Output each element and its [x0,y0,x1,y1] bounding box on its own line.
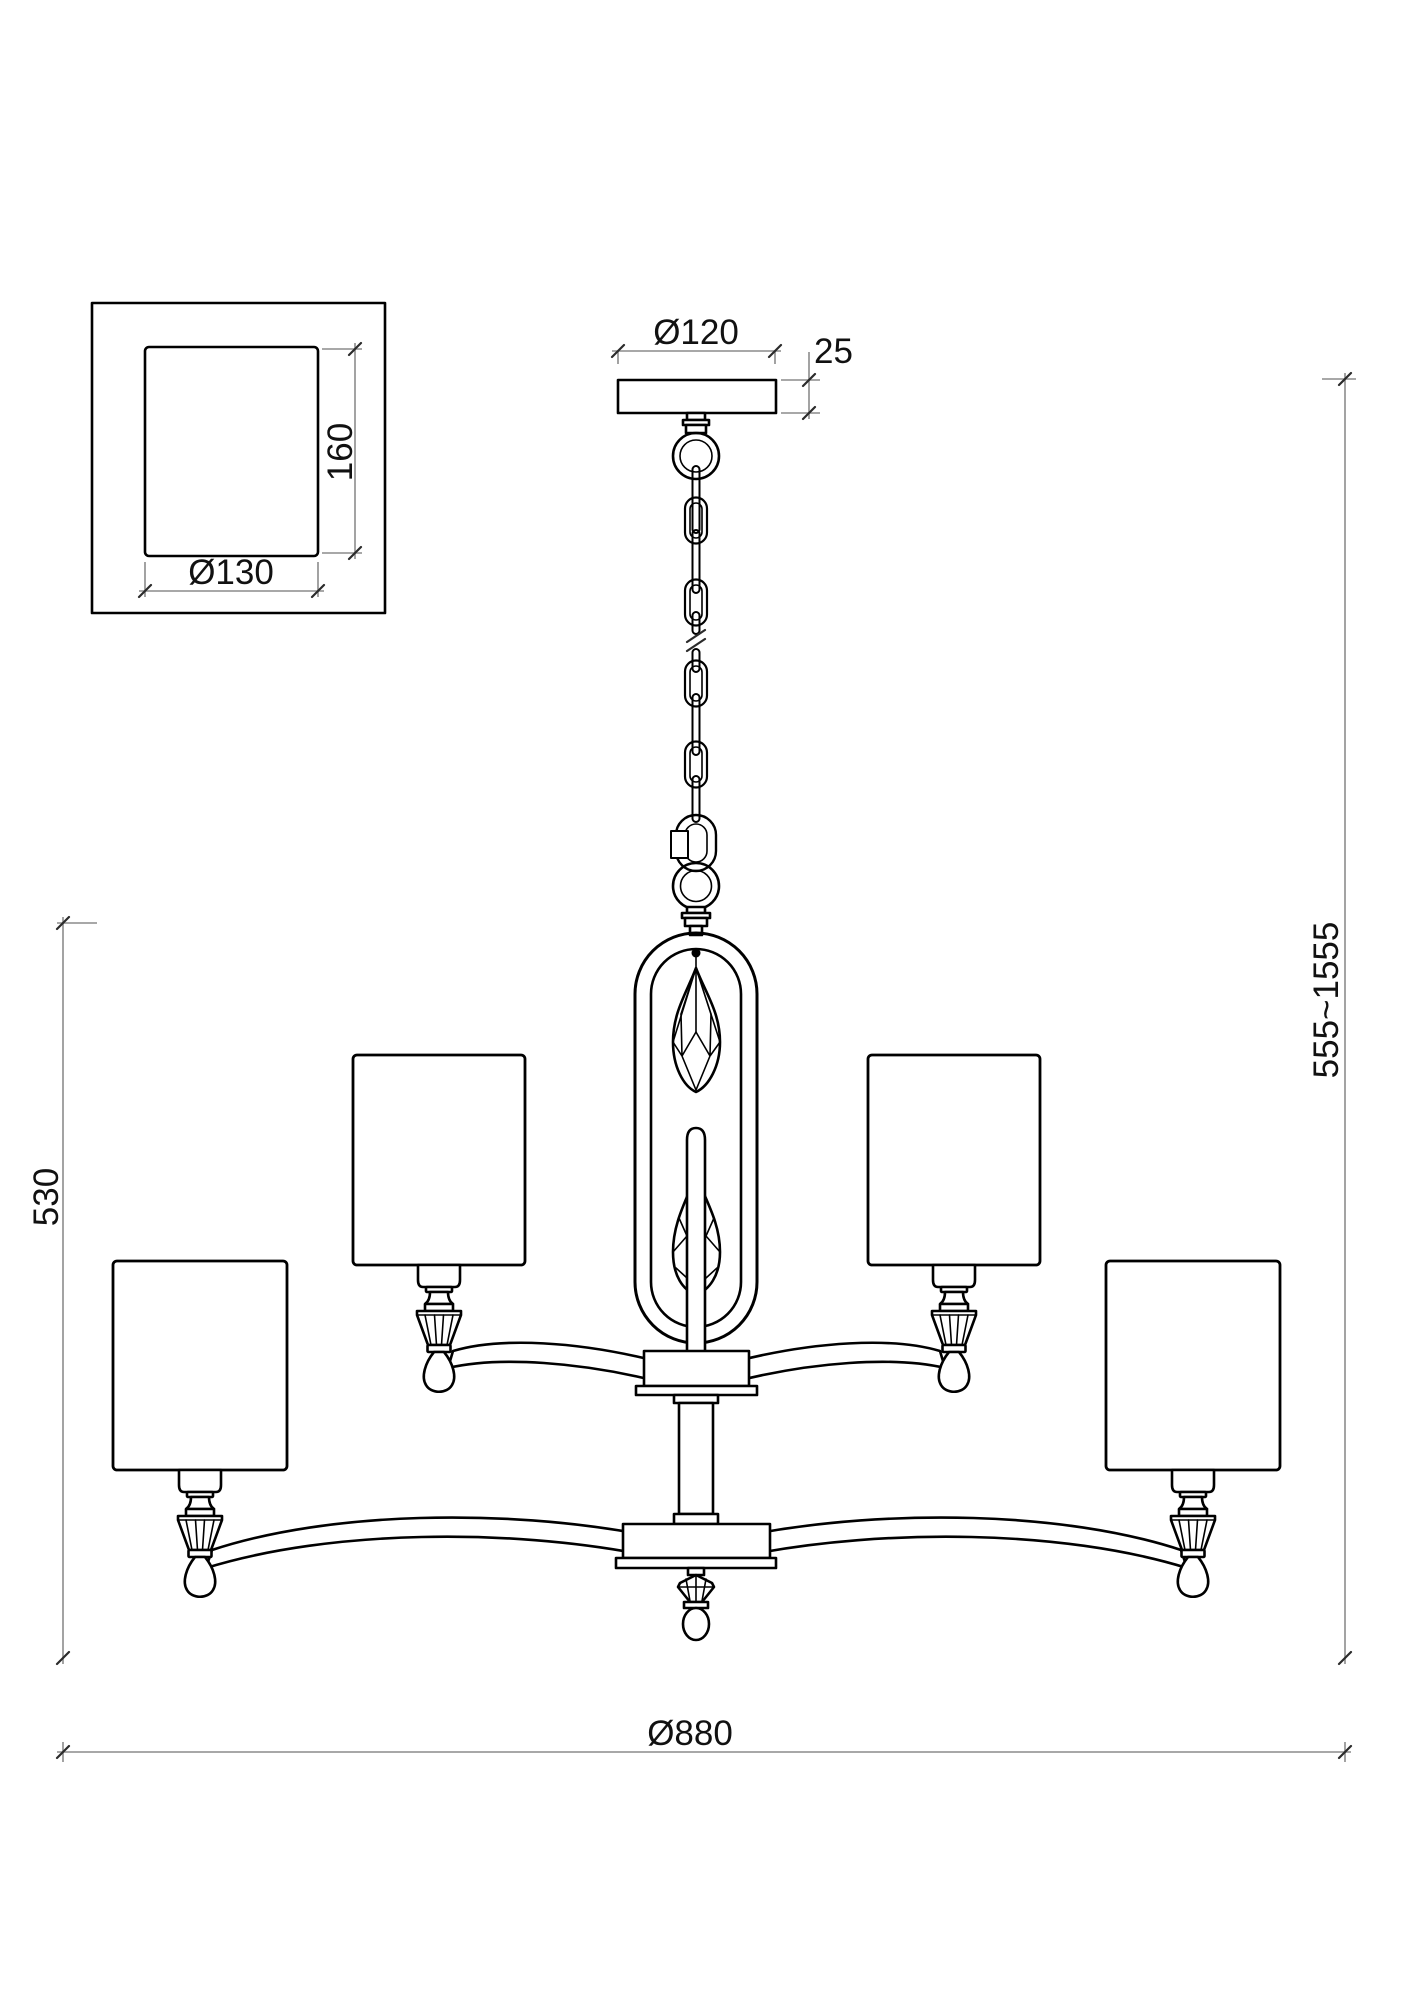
canopy-height-label: 25 [814,332,853,371]
detail-diameter-label: Ø130 [188,553,274,592]
canopy-diameter-label: Ø120 [653,313,739,352]
upper-arm-left [448,1343,660,1382]
column-bottom-ring [674,1514,718,1524]
lower-arm-left [206,1518,640,1568]
central-body [635,933,757,1352]
chain-link-oval-2 [685,580,707,626]
chain-link-edge-2 [693,530,700,593]
hanging-ring-inner [680,440,712,472]
candle-lower-right [1171,1470,1215,1597]
candle-lower-left [178,1470,222,1597]
chandelier-dimension-drawing: 160 Ø130 Ø120 25 [0,0,1413,2000]
column-shaft [679,1403,713,1514]
upper-arm-right [733,1343,945,1382]
upper-tier [448,1343,945,1395]
quick-link-sleeve [671,831,688,858]
lower-hub-flange [616,1558,776,1568]
lower-tier [206,1518,1187,1568]
lampshade-upper-right [868,1055,1040,1265]
suspension-ring-inner [681,871,712,902]
upper-hub-flange [636,1386,757,1395]
lampshade-lower-right [1106,1261,1280,1470]
overall-height-label: 555~1555 [1307,922,1346,1079]
lower-hub [623,1524,770,1558]
chain-link-oval-1 [685,498,707,544]
chain-link-oval-3 [685,661,707,707]
finial [678,1568,714,1640]
lampshade-lower-left [113,1261,287,1470]
crystal-pendant-upper [673,968,720,1092]
chain-link-edge-3a [693,612,700,634]
detail-view: 160 Ø130 [92,303,385,613]
technical-drawing-page: 160 Ø130 Ø120 25 [0,0,1413,2000]
center-rod [687,1128,705,1352]
crystal-mount-dot [692,949,701,958]
chain-link-edge-4 [693,694,700,755]
chain-link-oval-4 [685,742,707,788]
upper-arm-right-path [733,1343,945,1382]
body-height-label: 530 [27,1168,66,1226]
upper-hub [644,1351,749,1386]
overall-diameter-label: Ø880 [647,1714,733,1753]
chain-link-edge-1 [693,466,700,533]
lower-arm-right-path [753,1518,1187,1568]
center-column [674,1395,718,1524]
detail-shade-outline [145,347,318,556]
canopy-assembly: Ø120 25 [612,313,853,479]
canopy-plate [618,380,776,413]
canopy-diameter-extension-stubs [618,351,775,364]
candle-upper-left [417,1265,461,1392]
detail-height-label: 160 [321,423,360,481]
chain [671,466,719,935]
lampshade-upper-left [353,1055,525,1265]
lower-arm-right [753,1518,1187,1568]
finial-ball [683,1608,709,1640]
candle-upper-right [932,1265,976,1392]
